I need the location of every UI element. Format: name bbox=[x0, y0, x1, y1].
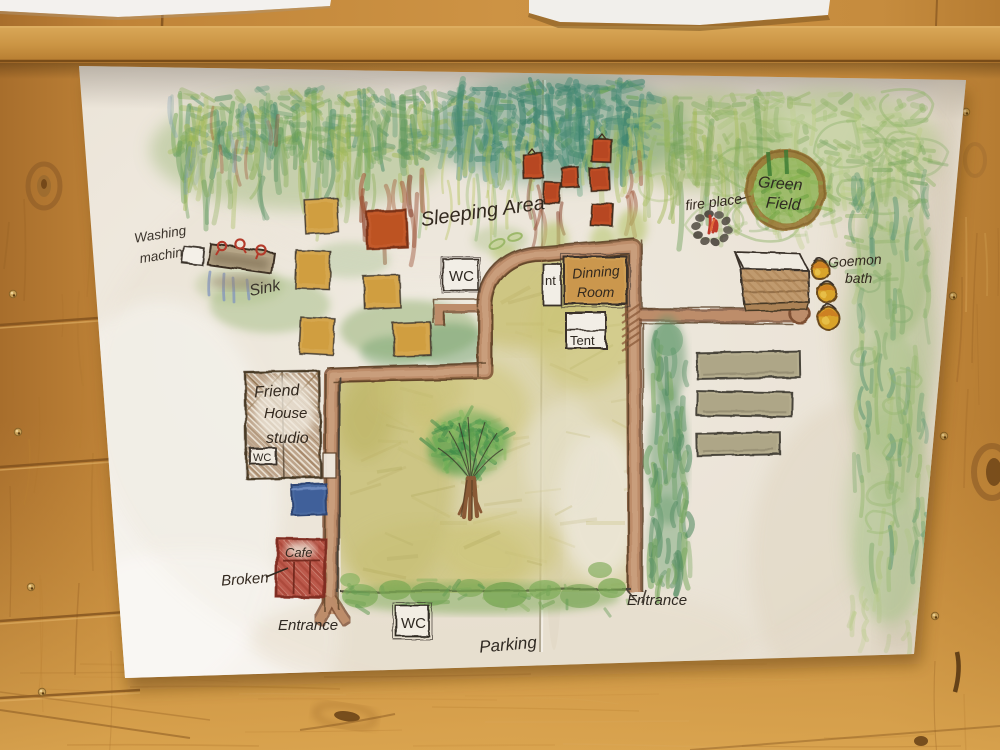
svg-text:WC: WC bbox=[401, 615, 426, 632]
svg-text:WC: WC bbox=[253, 452, 271, 464]
svg-text:Friend: Friend bbox=[254, 382, 301, 401]
svg-text:Tent: Tent bbox=[570, 333, 595, 348]
svg-text:House: House bbox=[264, 405, 307, 422]
svg-text:bath: bath bbox=[845, 270, 872, 286]
svg-text:nt: nt bbox=[545, 273, 556, 288]
svg-text:Broken: Broken bbox=[221, 569, 270, 589]
svg-text:Entrance: Entrance bbox=[278, 617, 338, 634]
svg-text:Green: Green bbox=[758, 174, 804, 194]
svg-text:Field: Field bbox=[765, 195, 802, 214]
svg-text:Cafe: Cafe bbox=[285, 545, 312, 560]
svg-text:Dinning: Dinning bbox=[572, 262, 621, 281]
svg-text:Room: Room bbox=[577, 284, 615, 300]
svg-text:WC: WC bbox=[449, 268, 474, 285]
svg-text:studio: studio bbox=[266, 430, 309, 447]
